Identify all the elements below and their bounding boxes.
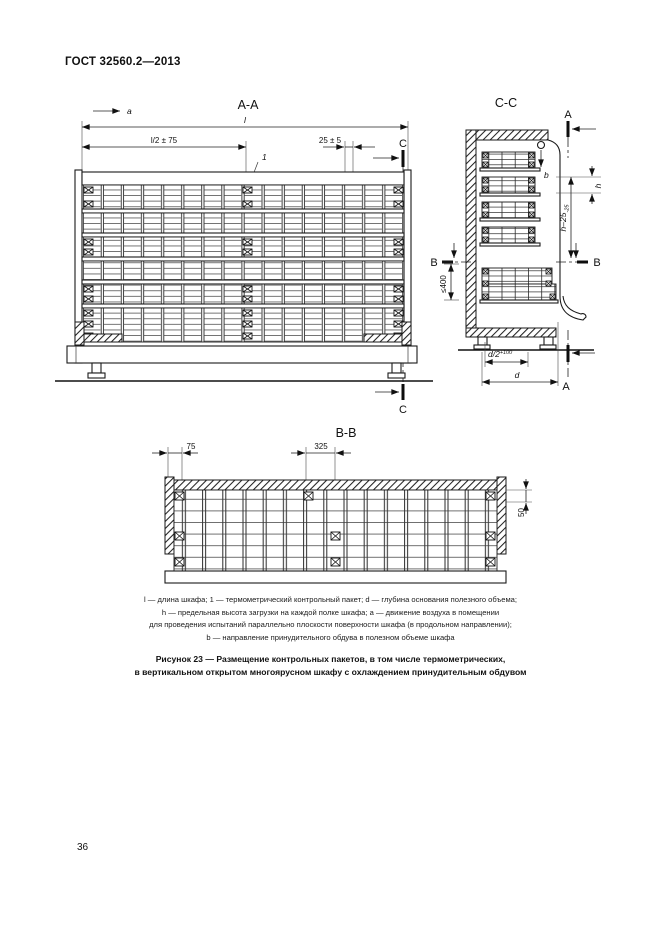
airflow-a-label: a bbox=[127, 106, 132, 116]
control-packet-marker bbox=[331, 532, 340, 540]
legend-line: для проведения испытаний параллельно пло… bbox=[0, 619, 661, 632]
shelf-band bbox=[82, 257, 404, 261]
section-a-bottom-mark: А bbox=[562, 330, 595, 393]
dim-h-label: h bbox=[593, 183, 603, 188]
section-c-top-label: С bbox=[399, 138, 407, 150]
shelf-plate bbox=[480, 218, 540, 221]
dimension-400: ≤400 bbox=[439, 264, 459, 300]
control-packet-marker bbox=[175, 558, 184, 566]
foot bbox=[92, 363, 101, 373]
control-packet-marker bbox=[394, 239, 403, 245]
control-packet-marker bbox=[486, 532, 495, 540]
airflow-b-arrow: b bbox=[541, 150, 549, 180]
dim-d-label: d bbox=[515, 370, 520, 380]
base-corner-hatch bbox=[84, 334, 122, 342]
control-packet-marker bbox=[529, 203, 534, 208]
control-packet-marker bbox=[84, 239, 93, 245]
view-aa-title: А-А bbox=[238, 98, 260, 112]
control-packet-marker bbox=[529, 212, 534, 217]
control-packet-marker bbox=[529, 178, 534, 183]
dim-400-label: ≤400 bbox=[439, 275, 448, 293]
foot bbox=[544, 337, 553, 345]
section-b-right-label: В bbox=[593, 257, 600, 269]
base-hatch bbox=[466, 328, 556, 337]
control-packet-marker bbox=[84, 249, 93, 255]
cabinet-front-view bbox=[55, 170, 433, 381]
control-packet-marker bbox=[486, 492, 495, 500]
control-packet-marker bbox=[483, 294, 488, 299]
section-b-left-label: В bbox=[430, 257, 437, 269]
view-aa: А-А a l l/2 ± 75 bbox=[55, 98, 433, 416]
control-packet-marker bbox=[529, 228, 534, 233]
control-packet-marker bbox=[243, 310, 252, 316]
control-packet-marker bbox=[483, 281, 488, 286]
base-corner-hatch bbox=[75, 322, 84, 345]
control-packet-marker bbox=[394, 249, 403, 255]
shelf-plate bbox=[480, 243, 540, 246]
control-packet-marker bbox=[546, 281, 551, 286]
bottom-load-block bbox=[482, 284, 556, 300]
control-packet-marker bbox=[483, 203, 488, 208]
canopy bbox=[82, 172, 404, 185]
dim-75-label: 75 bbox=[187, 442, 196, 451]
control-packet-marker bbox=[331, 558, 340, 566]
view-cc: С-С А bbox=[430, 96, 603, 393]
legend-line: l — длина шкафа; 1 — термометрический ко… bbox=[0, 594, 661, 607]
legend-line: h — предельная высота загрузки на каждой… bbox=[0, 607, 661, 620]
control-packet-marker bbox=[529, 162, 534, 167]
control-packet-marker bbox=[84, 201, 93, 207]
control-packet-marker bbox=[483, 237, 488, 242]
control-packet-marker bbox=[483, 153, 488, 158]
control-packet-marker bbox=[84, 187, 93, 193]
foot bbox=[392, 363, 401, 373]
control-packet-marker bbox=[529, 187, 534, 192]
front-edge-band bbox=[165, 571, 506, 583]
control-packet-marker bbox=[243, 333, 252, 339]
canopy-detail bbox=[538, 142, 545, 149]
control-packet-marker bbox=[550, 294, 555, 299]
dim-325-label: 325 bbox=[314, 442, 328, 451]
base-corner-hatch bbox=[402, 322, 411, 345]
control-packet-marker bbox=[243, 187, 252, 193]
airflow-a-arrow: a bbox=[93, 106, 132, 116]
air-duct-spout bbox=[560, 296, 586, 320]
foot-base bbox=[388, 373, 405, 378]
control-packet-marker bbox=[486, 558, 495, 566]
control-packet-marker bbox=[84, 321, 93, 327]
control-packet-marker bbox=[483, 212, 488, 217]
control-packet-marker bbox=[529, 153, 534, 158]
left-wall-section bbox=[165, 477, 174, 554]
shelf-plate bbox=[480, 300, 558, 303]
control-packet-marker bbox=[84, 296, 93, 302]
canopy-section bbox=[466, 130, 548, 140]
control-packet-marker bbox=[304, 492, 313, 500]
dim-l-label: l bbox=[244, 115, 247, 125]
shelf-plate bbox=[480, 193, 540, 196]
airflow-b-label: b bbox=[544, 170, 549, 180]
control-packet-marker bbox=[84, 286, 93, 292]
shelf-row-4 bbox=[82, 261, 404, 280]
control-packet-marker bbox=[483, 228, 488, 233]
control-packet-marker bbox=[394, 187, 403, 193]
control-packet-marker bbox=[483, 162, 488, 167]
control-packet-marker bbox=[243, 321, 252, 327]
control-packet-marker bbox=[394, 310, 403, 316]
control-packet-marker bbox=[394, 296, 403, 302]
control-packet-marker bbox=[175, 532, 184, 540]
section-b-marks: В В bbox=[430, 243, 600, 269]
section-c-bottom-label: С bbox=[399, 404, 407, 416]
control-packet-marker bbox=[483, 178, 488, 183]
dimension-h: h bbox=[556, 166, 603, 204]
shelf-load-block bbox=[482, 202, 535, 218]
control-packet-marker bbox=[243, 239, 252, 245]
foot-base bbox=[540, 345, 556, 349]
shelf-load-block bbox=[482, 177, 535, 193]
dim-l2-label: l/2 ± 75 bbox=[151, 136, 178, 145]
control-packet-marker bbox=[546, 269, 551, 274]
back-wall-band bbox=[174, 480, 497, 490]
control-packet-marker bbox=[84, 310, 93, 316]
base-corner-hatch bbox=[364, 334, 402, 342]
shelf-band bbox=[82, 304, 404, 308]
shelf-load-block bbox=[482, 152, 535, 168]
control-packet-marker bbox=[243, 249, 252, 255]
foot-base bbox=[88, 373, 105, 378]
shelf-band bbox=[82, 280, 404, 284]
shelf-plate bbox=[480, 168, 540, 171]
control-packet-marker bbox=[243, 286, 252, 292]
figure-caption: Рисунок 23 — Размещение контрольных паке… bbox=[0, 653, 661, 678]
bottom-load-block bbox=[482, 268, 552, 284]
caption-line-2: в вертикальном открытом многоярусном шка… bbox=[0, 666, 661, 679]
shelf-plan-section bbox=[165, 477, 506, 583]
figure-23-drawing: А-А a l l/2 ± 75 bbox=[0, 0, 661, 620]
view-bb-title: В-В bbox=[336, 426, 357, 440]
control-packet-marker bbox=[483, 187, 488, 192]
view-cc-title: С-С bbox=[495, 96, 517, 110]
document-page: ГОСТ 32560.2—2013 bbox=[0, 0, 661, 935]
back-wall-section bbox=[466, 130, 476, 336]
dim-50-label: 50 bbox=[517, 508, 526, 517]
control-packet-marker bbox=[243, 296, 252, 302]
shelf-load-block bbox=[482, 227, 535, 243]
dimension-l: l bbox=[82, 115, 408, 170]
figure-legend: l — длина шкафа; 1 — термометрический ко… bbox=[0, 594, 661, 644]
legend-line: b — направление принудительного обдува в… bbox=[0, 632, 661, 645]
dim-25-label: 25 ± 5 bbox=[319, 136, 342, 145]
right-wall-section bbox=[497, 477, 506, 554]
control-packet-marker bbox=[483, 269, 488, 274]
base-front-panel bbox=[67, 346, 417, 363]
foot bbox=[478, 337, 487, 345]
section-a-top-label: А bbox=[564, 109, 572, 121]
section-a-bottom-label: А bbox=[562, 381, 570, 393]
control-packet-marker bbox=[529, 237, 534, 242]
packet-ref-label: 1 bbox=[262, 152, 267, 162]
shelf-row-2 bbox=[82, 213, 404, 233]
shelf-band bbox=[82, 209, 404, 213]
dimension-d2: d/2+100 bbox=[485, 342, 528, 367]
cabinet-side-section bbox=[458, 130, 594, 350]
control-packet-marker bbox=[243, 201, 252, 207]
caption-line-1: Рисунок 23 — Размещение контрольных паке… bbox=[0, 653, 661, 666]
dimension-50: 50 bbox=[506, 479, 532, 517]
page-number: 36 bbox=[77, 842, 88, 853]
dim-d2-label: d/2+100 bbox=[488, 349, 513, 359]
control-packet-marker bbox=[394, 201, 403, 207]
view-bb: В-В 75 325 bbox=[152, 426, 532, 583]
control-packet-marker bbox=[394, 286, 403, 292]
section-a-top-mark: А bbox=[564, 109, 596, 158]
control-packet-marker bbox=[175, 492, 184, 500]
shelf-band bbox=[82, 233, 404, 237]
